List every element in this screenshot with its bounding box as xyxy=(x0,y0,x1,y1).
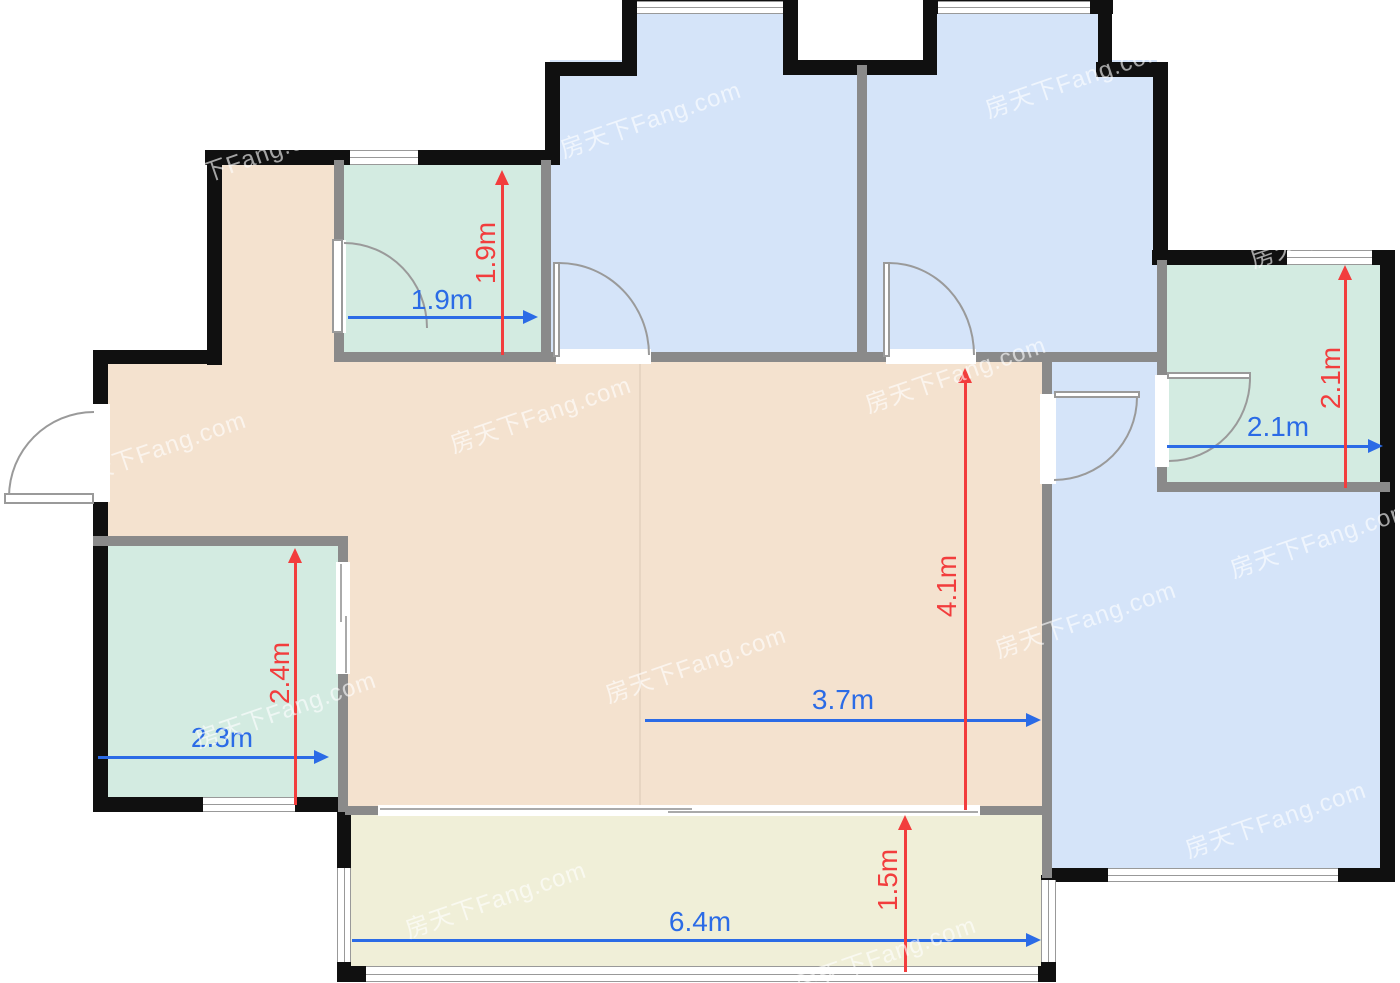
dim-arrow-bath-right-width xyxy=(1167,445,1369,448)
wall-bedroom2-right xyxy=(1153,62,1168,265)
dim-arrowhead-living-height xyxy=(958,368,972,383)
dim-label-bath-right-width: 2.1m xyxy=(1233,411,1323,443)
floor-plan: 1.9m 1.9m 2.1m 2.1m 3.7m 4.1m 2.3m 2.4m … xyxy=(0,0,1400,983)
room-kitchen xyxy=(100,540,345,810)
dim-arrow-balcony-height xyxy=(904,829,907,972)
dim-label-balcony-width: 6.4m xyxy=(655,906,745,938)
door-sliding-kitchen-panel-2 xyxy=(345,616,347,673)
wall-left-step xyxy=(93,350,222,364)
window-balcony-bottom xyxy=(366,966,1038,982)
dim-label-living-width: 3.7m xyxy=(798,684,888,716)
room-bedroom-1-bay xyxy=(632,8,783,70)
dim-arrow-living-height xyxy=(964,382,967,810)
wall-left-upper xyxy=(207,150,222,365)
wall-bedroom1-left-upper xyxy=(545,62,560,165)
window-bathright-top xyxy=(1287,250,1372,265)
room-bedroom-2-bay xyxy=(930,8,1102,70)
dim-label-living-height: 4.1m xyxy=(931,541,963,631)
window-bay2 xyxy=(938,1,1090,14)
wall-bathtop-right xyxy=(541,160,551,362)
dim-label-bath-right-height: 2.1m xyxy=(1315,333,1347,423)
window-balcony-left xyxy=(337,868,351,962)
dim-arrowhead-balcony-width xyxy=(1026,933,1041,947)
living-dining-divider xyxy=(639,363,641,806)
wall-bay1-left xyxy=(622,0,637,70)
dim-arrowhead-living-width xyxy=(1026,713,1041,727)
wall-right-main xyxy=(1380,255,1395,882)
dim-label-bath-top-height: 1.9m xyxy=(470,208,502,298)
door-leaf-bath-top xyxy=(332,239,343,333)
door-sliding-balcony-panel-1 xyxy=(380,808,692,810)
dim-arrow-balcony-width xyxy=(352,939,1027,942)
window-rightroom-bottom xyxy=(1108,868,1338,882)
door-sliding-kitchen xyxy=(336,562,350,674)
dim-arrowhead-kitchen-width xyxy=(314,750,329,764)
dim-arrow-living-width xyxy=(645,719,1027,722)
door-sliding-kitchen-panel-1 xyxy=(340,564,342,622)
wall-between-bedrooms xyxy=(857,65,867,360)
window-balcony-right xyxy=(1041,880,1056,962)
dim-label-balcony-height: 1.5m xyxy=(872,835,904,925)
wall-kitchen-top xyxy=(93,536,348,546)
door-opening-bath-right xyxy=(1155,375,1169,467)
dim-arrowhead-kitchen-height xyxy=(288,548,302,563)
door-arc-entrance xyxy=(8,411,94,497)
window-bay1 xyxy=(637,1,783,14)
window-entry-top xyxy=(350,150,418,165)
dim-arrowhead-bath-top-width xyxy=(523,310,538,324)
room-balcony xyxy=(345,810,1052,972)
door-leaf-entrance xyxy=(4,493,94,504)
dim-arrow-kitchen-width xyxy=(98,756,315,759)
wall-bathright-bottom xyxy=(1157,482,1390,492)
dim-arrowhead-bath-right-height xyxy=(1338,265,1352,280)
dim-label-kitchen-height: 2.4m xyxy=(264,628,296,718)
window-kitchen-bottom xyxy=(203,797,295,812)
dim-arrow-bath-top-width xyxy=(348,316,524,319)
dim-label-kitchen-width: 2.3m xyxy=(177,722,267,754)
dim-arrowhead-bath-top-height xyxy=(495,170,509,185)
door-sliding-balcony-panel-2 xyxy=(668,811,978,813)
room-entry-hall xyxy=(218,160,344,365)
dim-arrowhead-balcony-height xyxy=(898,815,912,830)
wall-bedrooms-bottom xyxy=(334,352,1162,362)
dim-arrowhead-bath-right-width xyxy=(1368,439,1383,453)
